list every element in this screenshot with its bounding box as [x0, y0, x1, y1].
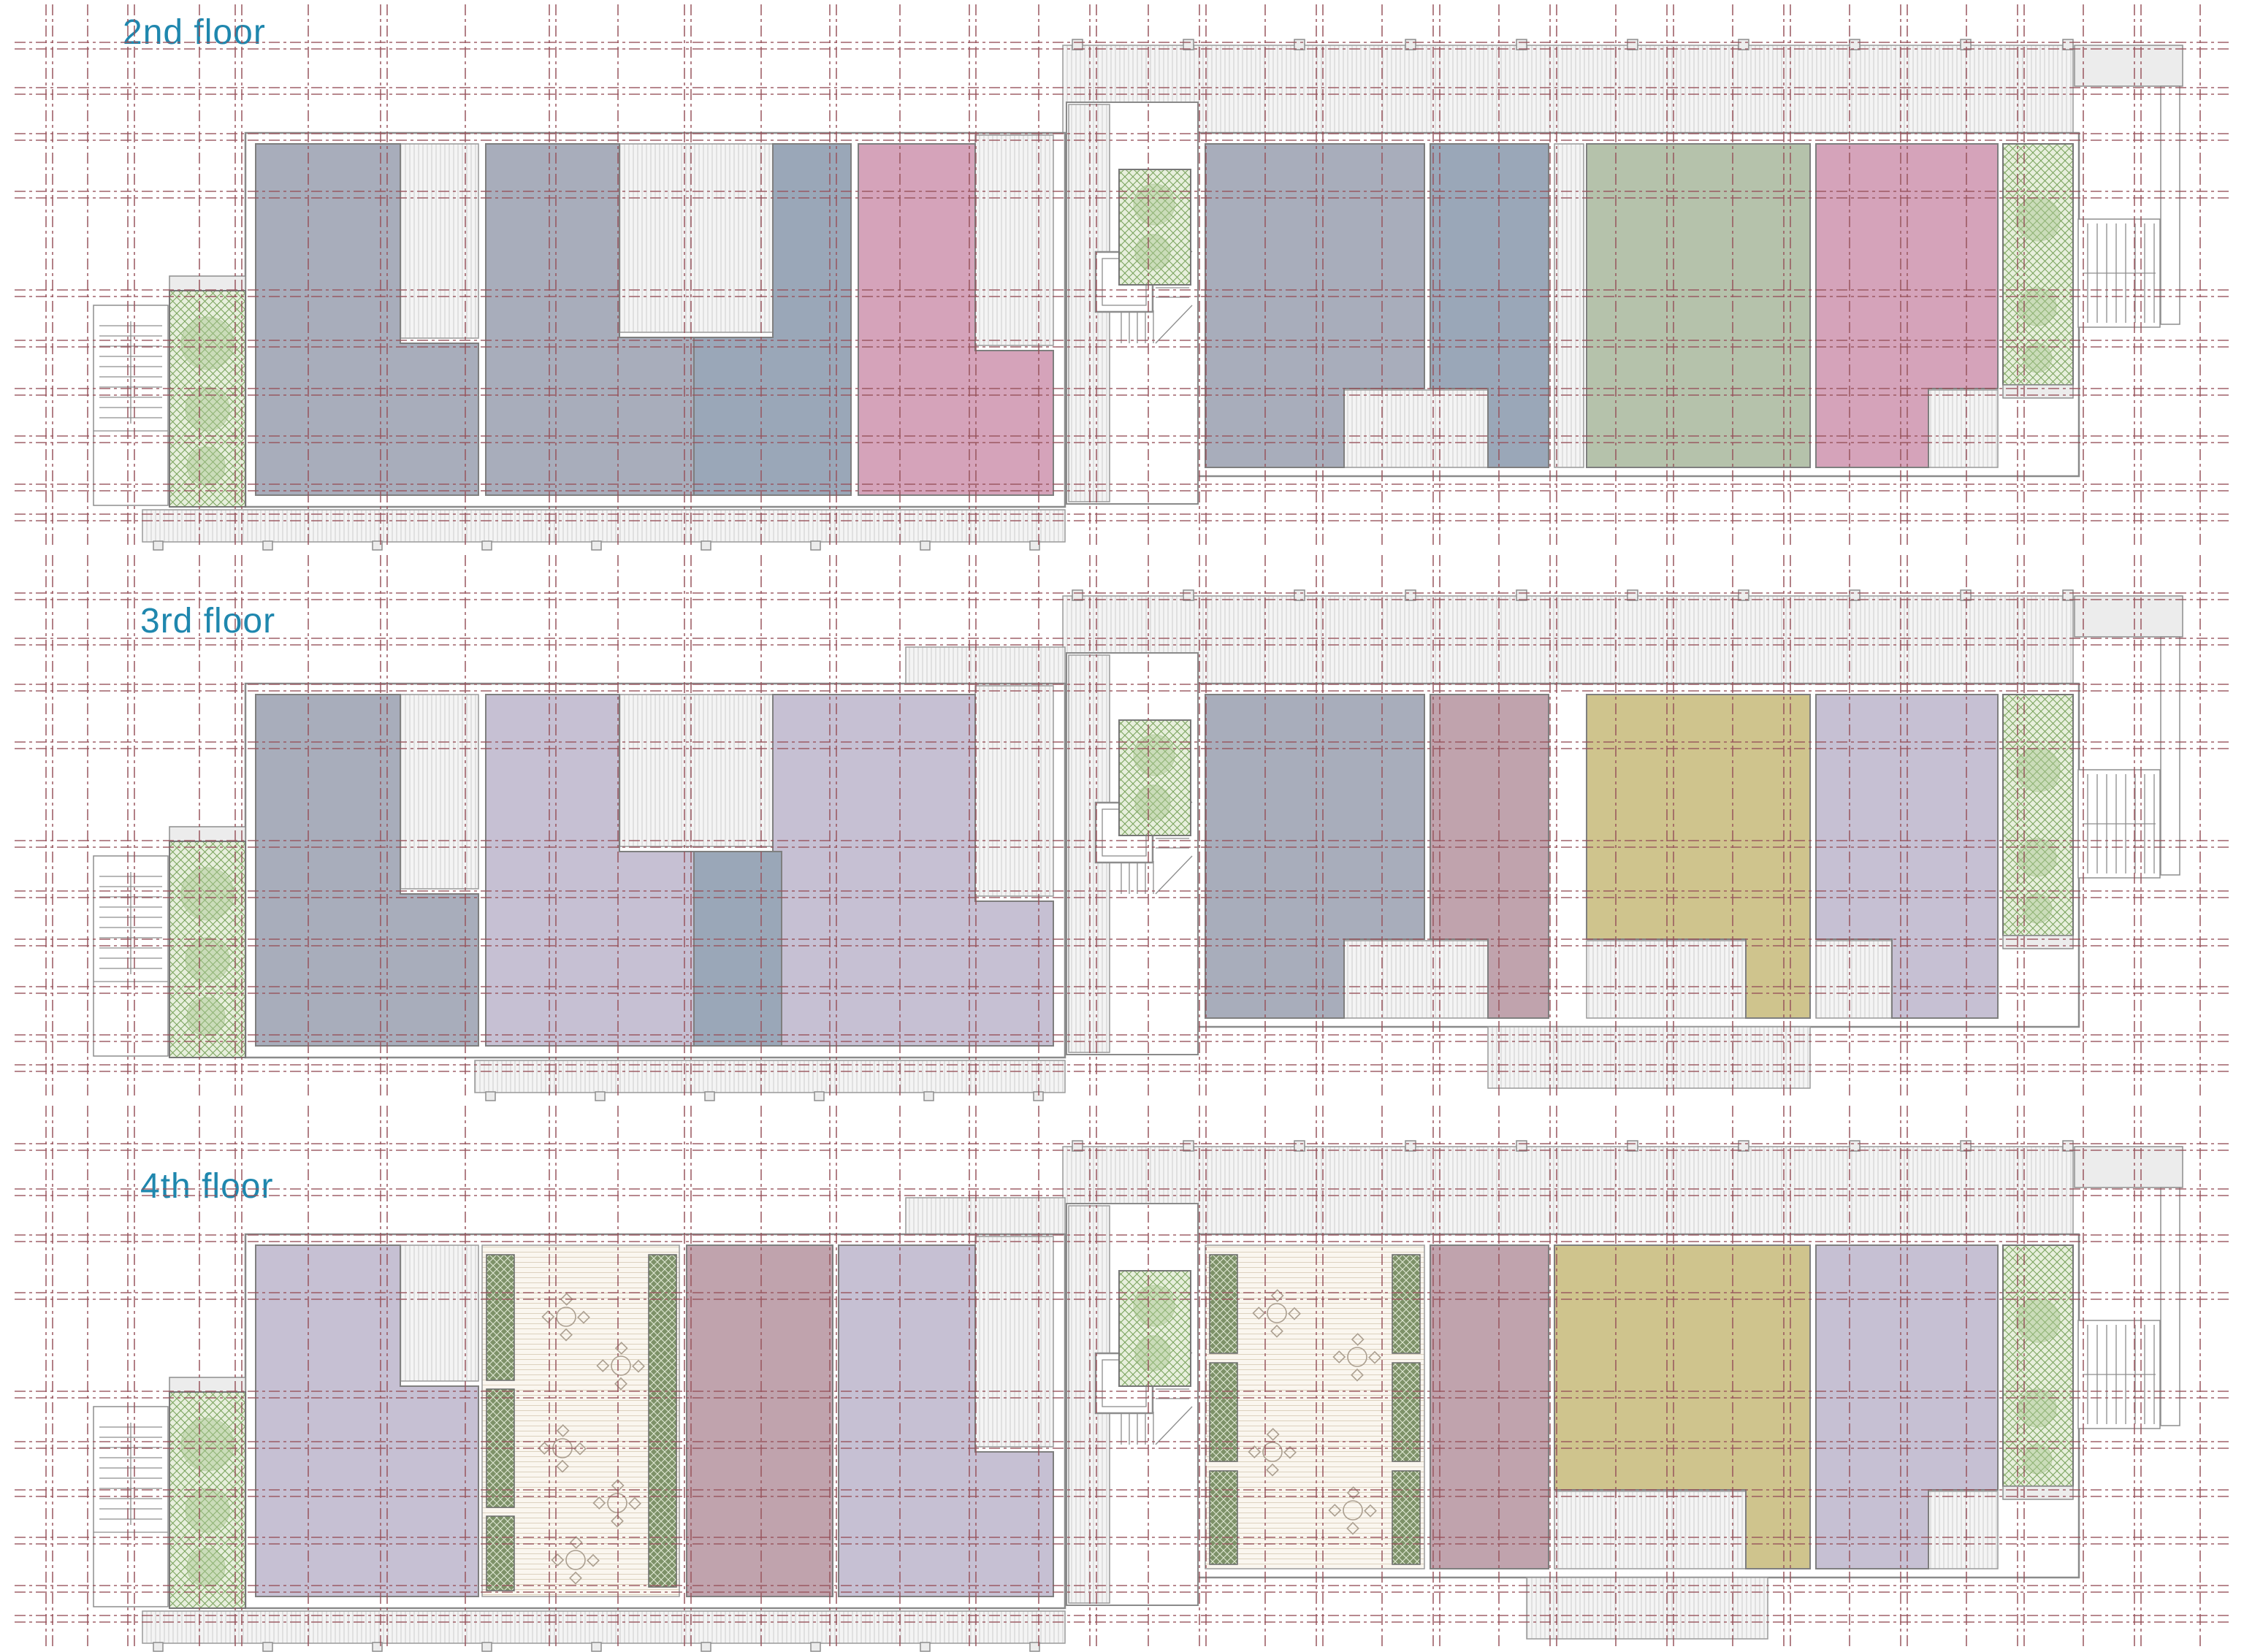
walkway-stub — [906, 1198, 1065, 1234]
floor-section-2nd: 2nd floor — [0, 0, 2244, 551]
terrace-planter-strip — [1392, 1471, 1420, 1564]
top-walkway — [1063, 1141, 2073, 1234]
deck-posts — [486, 1092, 1043, 1101]
deck-posts — [153, 541, 1039, 550]
right-planter — [2003, 1245, 2073, 1499]
core-planter — [1119, 1271, 1191, 1386]
right-planter — [2003, 695, 2073, 949]
floor-plan-4th: 4th floor — [0, 1101, 2244, 1652]
deck-posts — [153, 1643, 1039, 1651]
terrace-planter-strip — [486, 1255, 514, 1380]
floor-label-4th: 4th floor — [140, 1167, 273, 1206]
recessed-deck — [975, 135, 1053, 345]
top-walkway — [1063, 39, 2073, 133]
recessed-deck — [975, 686, 1053, 896]
room-green — [1587, 144, 1810, 467]
core-stair-elevator — [1066, 102, 1198, 504]
floor-plan-3rd: 3rd floor — [0, 551, 2244, 1101]
floor-plans-canvas: 2nd floor 3rd floor — [0, 0, 2244, 1652]
recessed-deck — [400, 695, 478, 889]
room-slate — [694, 852, 782, 1046]
right-bottom-deck — [1527, 1578, 1768, 1639]
core-planter — [1119, 169, 1191, 285]
terrace-planter-strip — [1392, 1363, 1420, 1461]
recessed-deck — [1928, 390, 1998, 467]
top-walkway — [1063, 590, 2073, 684]
recessed-deck — [1344, 390, 1488, 467]
recessed-deck — [1816, 941, 1892, 1018]
left-planter — [169, 827, 245, 1058]
terrace-planter-strip — [1210, 1471, 1237, 1564]
left-exterior-stair — [93, 1407, 168, 1607]
left-exterior-stair — [93, 856, 168, 1056]
right-planter — [2003, 144, 2073, 398]
terrace-planter-strip — [1210, 1363, 1237, 1461]
floor-section-3rd: 3rd floor — [0, 551, 2244, 1101]
recessed-deck — [400, 144, 478, 338]
left-planter — [169, 1377, 245, 1608]
terrace-planter-strip — [1210, 1255, 1237, 1353]
deck-strip — [1554, 144, 1584, 467]
recessed-deck — [1928, 1491, 1998, 1569]
recessed-deck — [975, 1236, 1053, 1447]
terrace-planter-strip — [486, 1516, 514, 1591]
core-planter — [1119, 720, 1191, 835]
floor-label-2nd: 2nd floor — [123, 13, 266, 52]
recessed-deck — [1587, 941, 1746, 1018]
walkway-stub — [906, 647, 1065, 684]
room-rose-2 — [1430, 1245, 1549, 1569]
recessed-deck — [1344, 941, 1488, 1018]
recessed-deck — [619, 695, 773, 846]
recessed-deck — [619, 144, 773, 332]
floor-plan-2nd: 2nd floor — [0, 0, 2244, 551]
recessed-deck — [1554, 1491, 1746, 1569]
core-stair-elevator — [1066, 653, 1198, 1055]
floor-label-3rd: 3rd floor — [140, 602, 275, 640]
left-exterior-stair — [93, 305, 168, 505]
right-roof-terrace — [1205, 1245, 1424, 1569]
right-bottom-deck — [1488, 1027, 1810, 1088]
core-stair-elevator — [1066, 1204, 1198, 1605]
terrace-planter-strip — [1392, 1255, 1420, 1353]
left-planter — [169, 276, 245, 507]
recessed-deck — [400, 1245, 478, 1381]
floor-section-4th: 4th floor — [0, 1101, 2244, 1652]
